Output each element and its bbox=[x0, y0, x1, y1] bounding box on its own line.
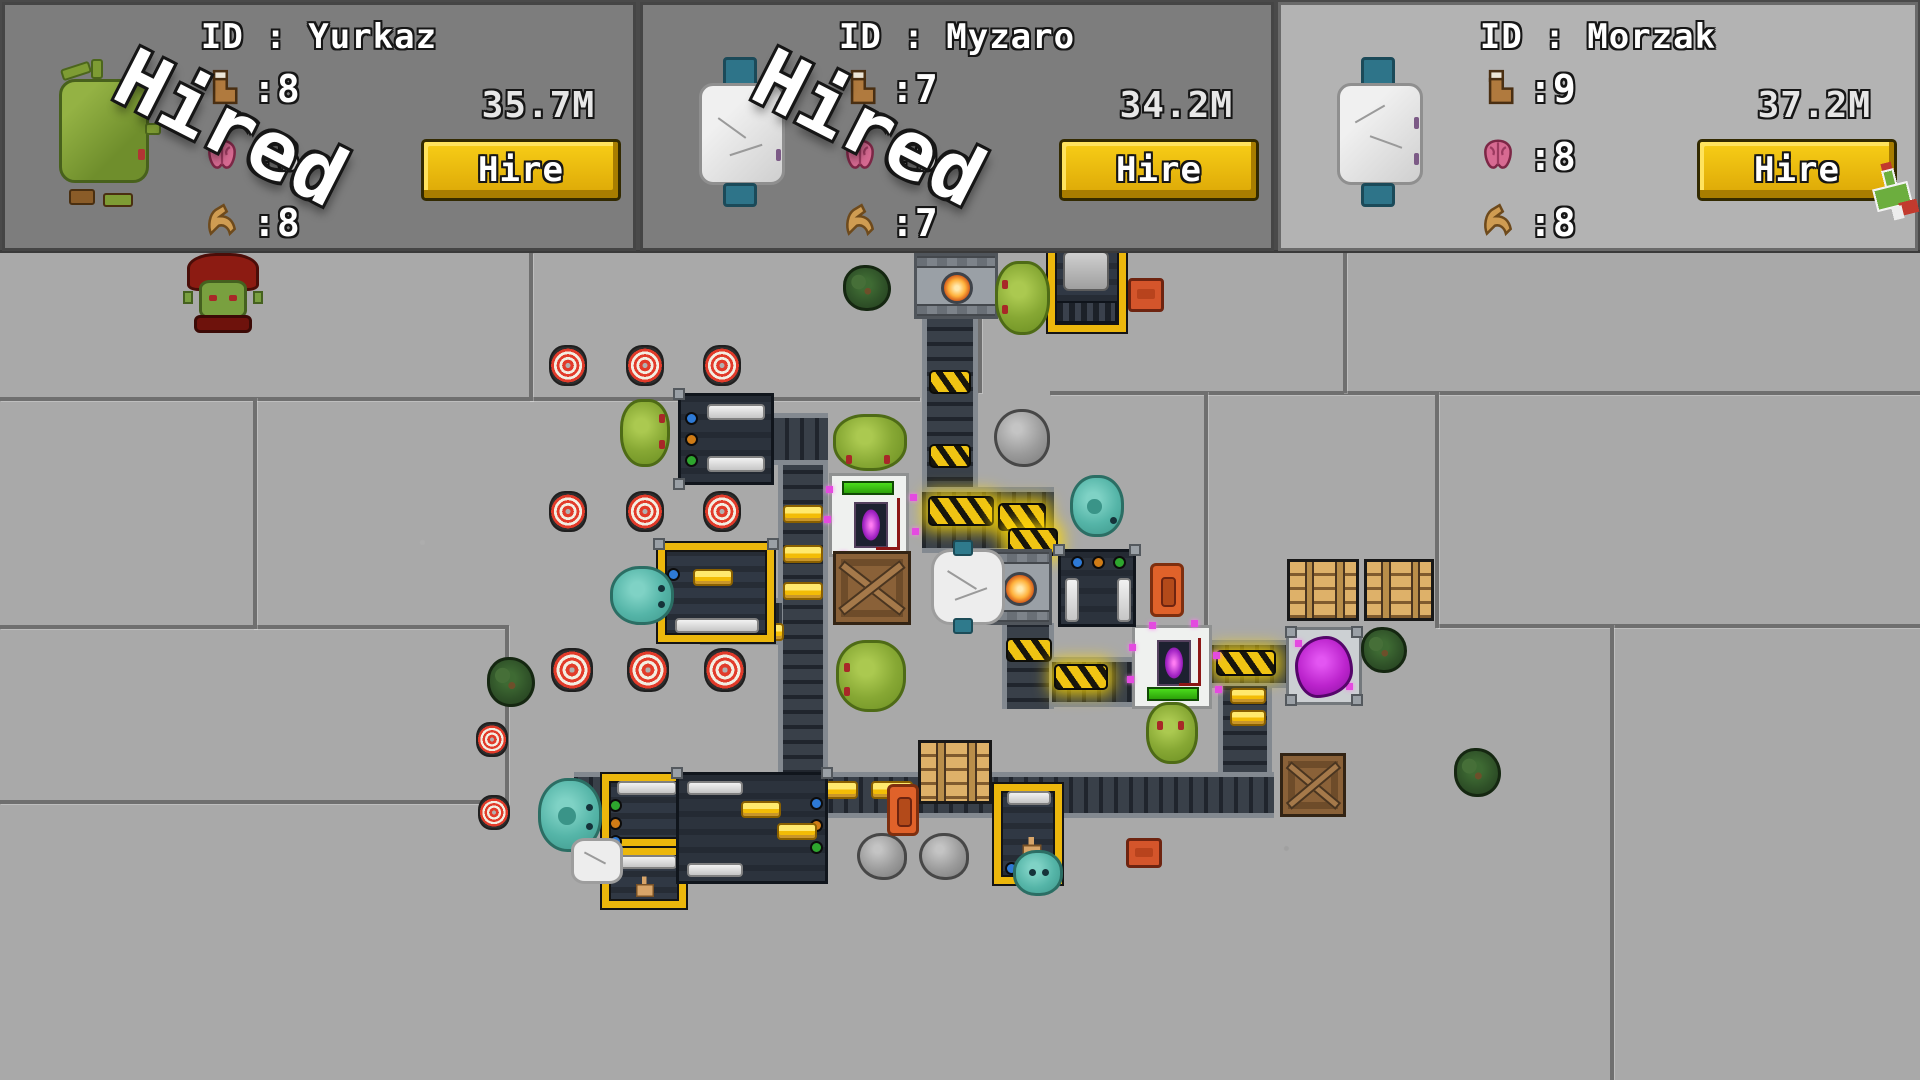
floor-grout bbox=[1435, 391, 1439, 628]
game-screen: ID : Yurkaz :8 :8 :8 bbox=[0, 0, 1920, 1080]
status-dot-green bbox=[810, 841, 823, 854]
boot-stat-value: :7 bbox=[891, 67, 939, 111]
floor-grout bbox=[1050, 391, 1920, 395]
workbench-machine[interactable] bbox=[676, 772, 828, 884]
crew-avatar-white-golem bbox=[1333, 57, 1429, 207]
muscle-stat-value: :8 bbox=[253, 201, 301, 245]
brain-stat-value: :8 bbox=[1529, 135, 1577, 179]
cargo-item-glowing[interactable] bbox=[1054, 664, 1108, 690]
floor-grout bbox=[1343, 253, 1347, 393]
target-marker[interactable] bbox=[703, 345, 741, 386]
target-marker[interactable] bbox=[551, 648, 593, 692]
gold-bar[interactable] bbox=[783, 582, 823, 600]
status-dot-blue bbox=[685, 412, 698, 425]
gold-bar[interactable] bbox=[693, 569, 733, 586]
floor-grout bbox=[253, 397, 257, 629]
brain-stat-value: :8 bbox=[253, 135, 301, 179]
target-marker[interactable] bbox=[626, 345, 664, 386]
gold-bar[interactable] bbox=[1230, 688, 1266, 704]
floor-grout bbox=[1610, 624, 1614, 1080]
white-golem[interactable] bbox=[931, 549, 1005, 625]
price-label: 37.2M bbox=[1681, 85, 1871, 126]
muscle-icon bbox=[841, 202, 879, 244]
cargo-item-glowing[interactable] bbox=[998, 503, 1046, 531]
green-slime[interactable] bbox=[995, 261, 1050, 335]
crafter-machine[interactable] bbox=[1132, 625, 1212, 709]
gold-bar[interactable] bbox=[783, 545, 823, 563]
green-slime[interactable] bbox=[1146, 702, 1198, 764]
hire-card-morzak[interactable]: ID : Morzak :9 :8 :8 37. bbox=[1278, 2, 1918, 251]
status-dot-green bbox=[685, 454, 698, 467]
hire-menu: ID : Yurkaz :8 :8 :8 bbox=[0, 0, 1920, 253]
crew-id-label: ID : Morzak bbox=[1281, 17, 1915, 57]
muscle-icon bbox=[1479, 202, 1517, 244]
target-marker[interactable] bbox=[549, 345, 587, 386]
white-golem[interactable] bbox=[571, 838, 623, 884]
tree[interactable] bbox=[843, 265, 891, 311]
gold-bar[interactable] bbox=[1230, 710, 1266, 726]
teal-slime[interactable] bbox=[1070, 475, 1124, 537]
status-dot-orange bbox=[1092, 556, 1105, 569]
floor-grout bbox=[1204, 391, 1208, 628]
floor-grout bbox=[1437, 624, 1920, 628]
gold-bar[interactable] bbox=[783, 505, 823, 523]
stone[interactable] bbox=[857, 833, 907, 880]
cargo-item[interactable] bbox=[1006, 638, 1052, 662]
target-marker[interactable] bbox=[626, 491, 664, 532]
wooden-crate[interactable] bbox=[1280, 753, 1346, 817]
green-slime[interactable] bbox=[836, 640, 906, 712]
conveyor-belt[interactable] bbox=[770, 413, 828, 465]
teal-slime[interactable] bbox=[1013, 850, 1063, 896]
boot-stat-value: :9 bbox=[1529, 67, 1577, 111]
floor-grout bbox=[0, 800, 508, 804]
conveyor-belt[interactable] bbox=[922, 312, 978, 502]
goblin-worker[interactable] bbox=[187, 253, 259, 333]
boot-icon bbox=[1479, 68, 1517, 110]
price-label: 35.7M bbox=[405, 85, 595, 126]
muscle-stat-value: :7 bbox=[891, 201, 939, 245]
tree[interactable] bbox=[1454, 748, 1501, 797]
floor-grout bbox=[505, 625, 509, 804]
gold-bar[interactable] bbox=[741, 801, 781, 818]
brain-stat-value: :9 bbox=[891, 135, 939, 179]
boot-icon bbox=[203, 68, 241, 110]
target-marker[interactable] bbox=[703, 491, 741, 532]
stone[interactable] bbox=[919, 833, 969, 880]
muscle-icon bbox=[203, 202, 241, 244]
boot-icon bbox=[841, 68, 879, 110]
harvester-machine[interactable] bbox=[1048, 240, 1126, 332]
miner-machine[interactable] bbox=[658, 543, 774, 642]
wooden-pallet[interactable] bbox=[918, 740, 992, 804]
orange-door[interactable] bbox=[1150, 563, 1184, 617]
target-marker[interactable] bbox=[478, 795, 510, 830]
conveyor-belt[interactable] bbox=[1002, 623, 1054, 709]
status-dot-green bbox=[1113, 556, 1126, 569]
status-dot-green bbox=[609, 799, 622, 812]
teal-slime[interactable] bbox=[610, 566, 674, 625]
crew-id-label: ID : Yurkaz bbox=[5, 17, 633, 57]
orange-door[interactable] bbox=[887, 784, 919, 836]
crafter-machine[interactable] bbox=[829, 473, 909, 557]
target-marker[interactable] bbox=[627, 648, 669, 692]
cargo-item-glowing[interactable] bbox=[1216, 650, 1276, 676]
crew-id-label: ID : Myzaro bbox=[643, 17, 1271, 57]
hire-card-yurkaz[interactable]: ID : Yurkaz :8 :8 :8 bbox=[2, 2, 636, 251]
status-dot-blue bbox=[1071, 556, 1084, 569]
green-slime[interactable] bbox=[833, 414, 907, 471]
hire-button[interactable]: Hire bbox=[421, 139, 621, 201]
brain-icon bbox=[841, 136, 879, 178]
storage-chest[interactable] bbox=[602, 774, 686, 846]
boot-stat-value: :8 bbox=[253, 67, 301, 111]
green-slime[interactable] bbox=[620, 399, 670, 467]
gold-bar[interactable] bbox=[777, 823, 817, 840]
brain-icon bbox=[203, 136, 241, 178]
target-marker[interactable] bbox=[549, 491, 587, 532]
price-label: 34.2M bbox=[1043, 85, 1233, 126]
stone[interactable] bbox=[994, 409, 1050, 467]
orange-brick[interactable] bbox=[1126, 838, 1162, 868]
hire-button[interactable]: Hire bbox=[1059, 139, 1259, 201]
furnace-machine[interactable] bbox=[914, 253, 998, 319]
orange-brick[interactable] bbox=[1128, 278, 1164, 312]
roller-machine[interactable] bbox=[1058, 549, 1136, 627]
cargo-item-glowing[interactable] bbox=[928, 496, 994, 526]
floor-grout bbox=[0, 397, 920, 401]
status-dot-blue bbox=[810, 797, 823, 810]
muscle-stat-value: :8 bbox=[1529, 201, 1577, 245]
target-marker[interactable] bbox=[476, 722, 508, 757]
crew-avatar-white-golem bbox=[695, 57, 791, 207]
target-marker[interactable] bbox=[704, 648, 746, 692]
cargo-item[interactable] bbox=[929, 444, 971, 468]
floor-grout bbox=[529, 253, 533, 401]
goblin-hand-icon bbox=[631, 875, 659, 905]
hire-card-myzaro[interactable]: ID : Myzaro :7 :9 :7 34. bbox=[640, 2, 1274, 251]
crew-avatar-green-orc bbox=[57, 57, 153, 207]
tree[interactable] bbox=[487, 657, 535, 707]
wooden-pallet[interactable] bbox=[1287, 559, 1359, 621]
workbench-machine[interactable] bbox=[678, 393, 774, 485]
tree[interactable] bbox=[1361, 627, 1407, 673]
conveyor-belt[interactable] bbox=[778, 455, 828, 777]
status-dot-orange bbox=[685, 433, 698, 446]
wooden-crate[interactable] bbox=[833, 551, 911, 625]
status-dot-orange bbox=[609, 817, 622, 830]
wooden-pallet[interactable] bbox=[1364, 559, 1434, 621]
brain-icon bbox=[1479, 136, 1517, 178]
cargo-item[interactable] bbox=[929, 370, 971, 394]
